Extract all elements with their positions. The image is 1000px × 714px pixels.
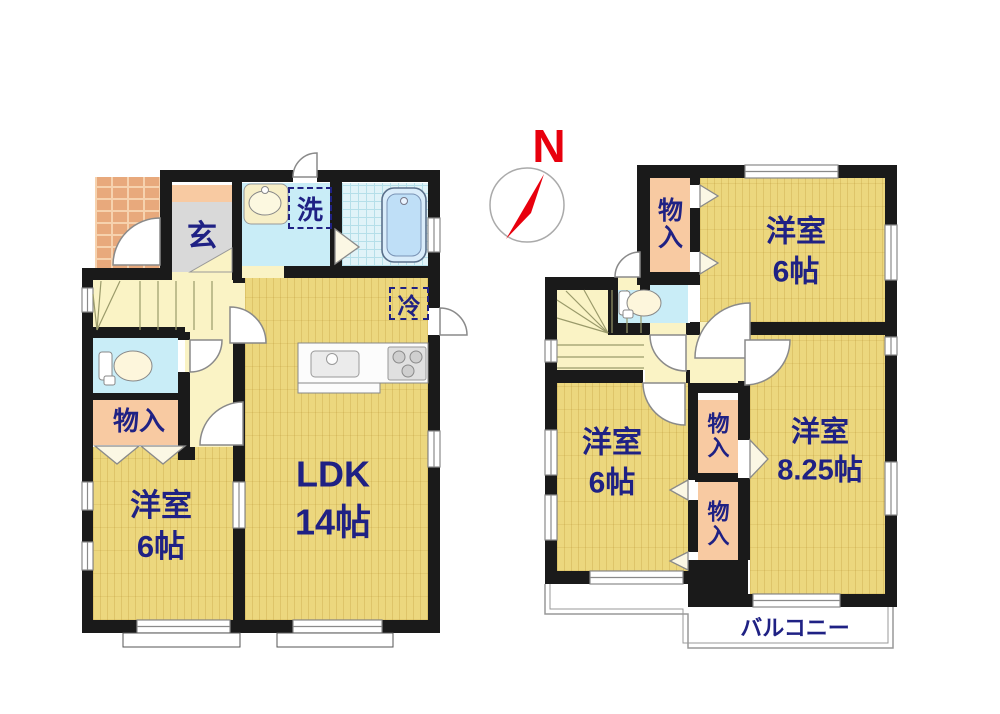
toilet-fixture-2f bbox=[619, 290, 661, 318]
laundry-machine-box: 洗 bbox=[288, 187, 332, 229]
storage-nw-label-2f: 物入 bbox=[652, 197, 685, 251]
room-sw-size: 6帖 bbox=[582, 463, 642, 503]
plan-linework bbox=[0, 0, 1000, 714]
back-door-arc bbox=[293, 153, 317, 177]
kitchen-counter-fixture bbox=[298, 343, 428, 393]
room-sw-name: 洋室 bbox=[582, 423, 642, 463]
entrance-door-arc bbox=[113, 218, 160, 265]
room-ne-size: 6帖 bbox=[766, 252, 826, 292]
storage-mid-upper-label: 物入 bbox=[702, 412, 731, 460]
room-sw-door-arc bbox=[643, 383, 685, 425]
room-se-label-2f: 洋室 8.25帖 bbox=[777, 414, 862, 491]
bay-window-outlines-1f bbox=[123, 633, 393, 647]
bathtub-fixture bbox=[382, 188, 426, 262]
balcony-label: バルコニー bbox=[740, 613, 850, 642]
ldk-size: 14帖 bbox=[295, 498, 371, 546]
entrance-label: 玄 bbox=[187, 217, 217, 257]
room-ne-name: 洋室 bbox=[766, 212, 826, 252]
western-room-name-1f: 洋室 bbox=[130, 486, 192, 527]
compass bbox=[490, 168, 564, 242]
bedroom-door-arc-1f bbox=[200, 402, 243, 445]
stairs-1f bbox=[93, 281, 212, 330]
compass-north-label: N bbox=[532, 119, 565, 173]
room-se-size: 8.25帖 bbox=[777, 452, 862, 490]
fridge-label: 冷 bbox=[398, 287, 421, 321]
western-room-label-1f: 洋室 6帖 bbox=[130, 486, 192, 568]
sink-fixture bbox=[244, 184, 288, 224]
storage-mid-lower-label: 物入 bbox=[702, 500, 731, 548]
laundry-label: 洗 bbox=[297, 190, 323, 227]
ldk-name: LDK bbox=[295, 450, 371, 498]
toilet-door-arc-2f bbox=[650, 335, 686, 371]
stairhall-top-door-arc bbox=[615, 252, 640, 277]
storage-label-1f: 物入 bbox=[113, 404, 165, 438]
hall-ldk-door-arc bbox=[230, 307, 266, 343]
fridge-box: 冷 bbox=[389, 287, 429, 320]
western-room-size-1f: 6帖 bbox=[130, 527, 192, 568]
ldk-label: LDK 14帖 bbox=[295, 450, 371, 545]
bath-folding-door bbox=[335, 229, 359, 264]
ldk-exterior-door-arc bbox=[440, 308, 467, 335]
toilet-door-arc-1f bbox=[190, 340, 222, 372]
room-ne-door-arc bbox=[695, 303, 750, 358]
toilet-fixture-1f bbox=[99, 351, 152, 385]
room-ne-label-2f: 洋室 6帖 bbox=[766, 212, 826, 291]
room-sw-label-2f: 洋室 6帖 bbox=[582, 423, 642, 502]
floor-plan-canvas: N 玄 洗 冷 物入 洋室 6帖 LDK 14帖 物入 洋室 6帖 物入 物入 … bbox=[0, 0, 1000, 714]
room-se-name: 洋室 bbox=[777, 414, 862, 452]
room-se-door-arc bbox=[745, 340, 790, 385]
